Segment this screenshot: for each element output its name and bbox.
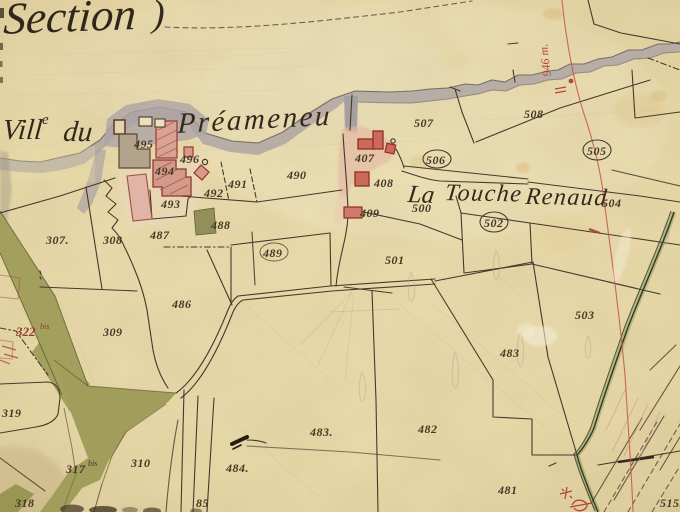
svg-text:481: 481 bbox=[497, 483, 518, 497]
svg-text:): ) bbox=[150, 0, 165, 35]
svg-text:e: e bbox=[42, 112, 49, 128]
svg-text:309: 309 bbox=[102, 325, 123, 339]
svg-text:491: 491 bbox=[227, 177, 248, 191]
svg-text:490: 490 bbox=[286, 168, 307, 182]
svg-text:483: 483 bbox=[499, 346, 520, 360]
svg-text:493: 493 bbox=[160, 197, 181, 211]
svg-text:496: 496 bbox=[179, 152, 200, 166]
svg-text:408: 408 bbox=[373, 176, 394, 190]
svg-text:482: 482 bbox=[417, 422, 438, 436]
svg-text:307.: 307. bbox=[45, 233, 69, 247]
svg-text:495: 495 bbox=[133, 137, 154, 151]
svg-text:486: 486 bbox=[171, 297, 192, 311]
svg-text:317: 317 bbox=[65, 462, 86, 476]
svg-text:Vill: Vill bbox=[1, 114, 44, 146]
svg-text:318: 318 bbox=[14, 496, 35, 510]
svg-text:85: 85 bbox=[196, 496, 209, 510]
svg-text:308: 308 bbox=[102, 233, 123, 247]
svg-text:501: 501 bbox=[385, 253, 405, 267]
svg-text:500: 500 bbox=[412, 201, 432, 215]
svg-text:Renaud: Renaud bbox=[523, 184, 609, 211]
svg-text:Touche: Touche bbox=[444, 180, 524, 207]
svg-text:407: 407 bbox=[354, 151, 375, 165]
svg-text:310: 310 bbox=[130, 456, 151, 470]
svg-text:Section: Section bbox=[2, 0, 138, 44]
svg-text:515.: 515. bbox=[660, 496, 680, 510]
svg-text:484.: 484. bbox=[225, 461, 249, 475]
svg-text:du: du bbox=[62, 116, 94, 148]
svg-text:494: 494 bbox=[154, 164, 175, 178]
svg-text:505: 505 bbox=[587, 144, 607, 158]
svg-text:409: 409 bbox=[359, 206, 380, 220]
svg-text:504: 504 bbox=[602, 196, 622, 210]
svg-text:507: 507 bbox=[414, 116, 434, 130]
svg-text:319: 319 bbox=[1, 406, 22, 420]
svg-text:488: 488 bbox=[210, 218, 231, 232]
svg-text:506: 506 bbox=[426, 153, 446, 167]
svg-text:487: 487 bbox=[149, 228, 170, 242]
svg-text:492: 492 bbox=[203, 186, 224, 200]
svg-text:bis: bis bbox=[88, 459, 97, 468]
svg-text:489: 489 bbox=[262, 246, 283, 260]
svg-text:bis: bis bbox=[40, 322, 49, 331]
svg-text:483.: 483. bbox=[309, 425, 333, 439]
svg-text:508: 508 bbox=[524, 107, 544, 121]
svg-text:503: 503 bbox=[575, 308, 595, 322]
svg-text:502: 502 bbox=[484, 216, 504, 230]
svg-text:322: 322 bbox=[15, 324, 36, 339]
